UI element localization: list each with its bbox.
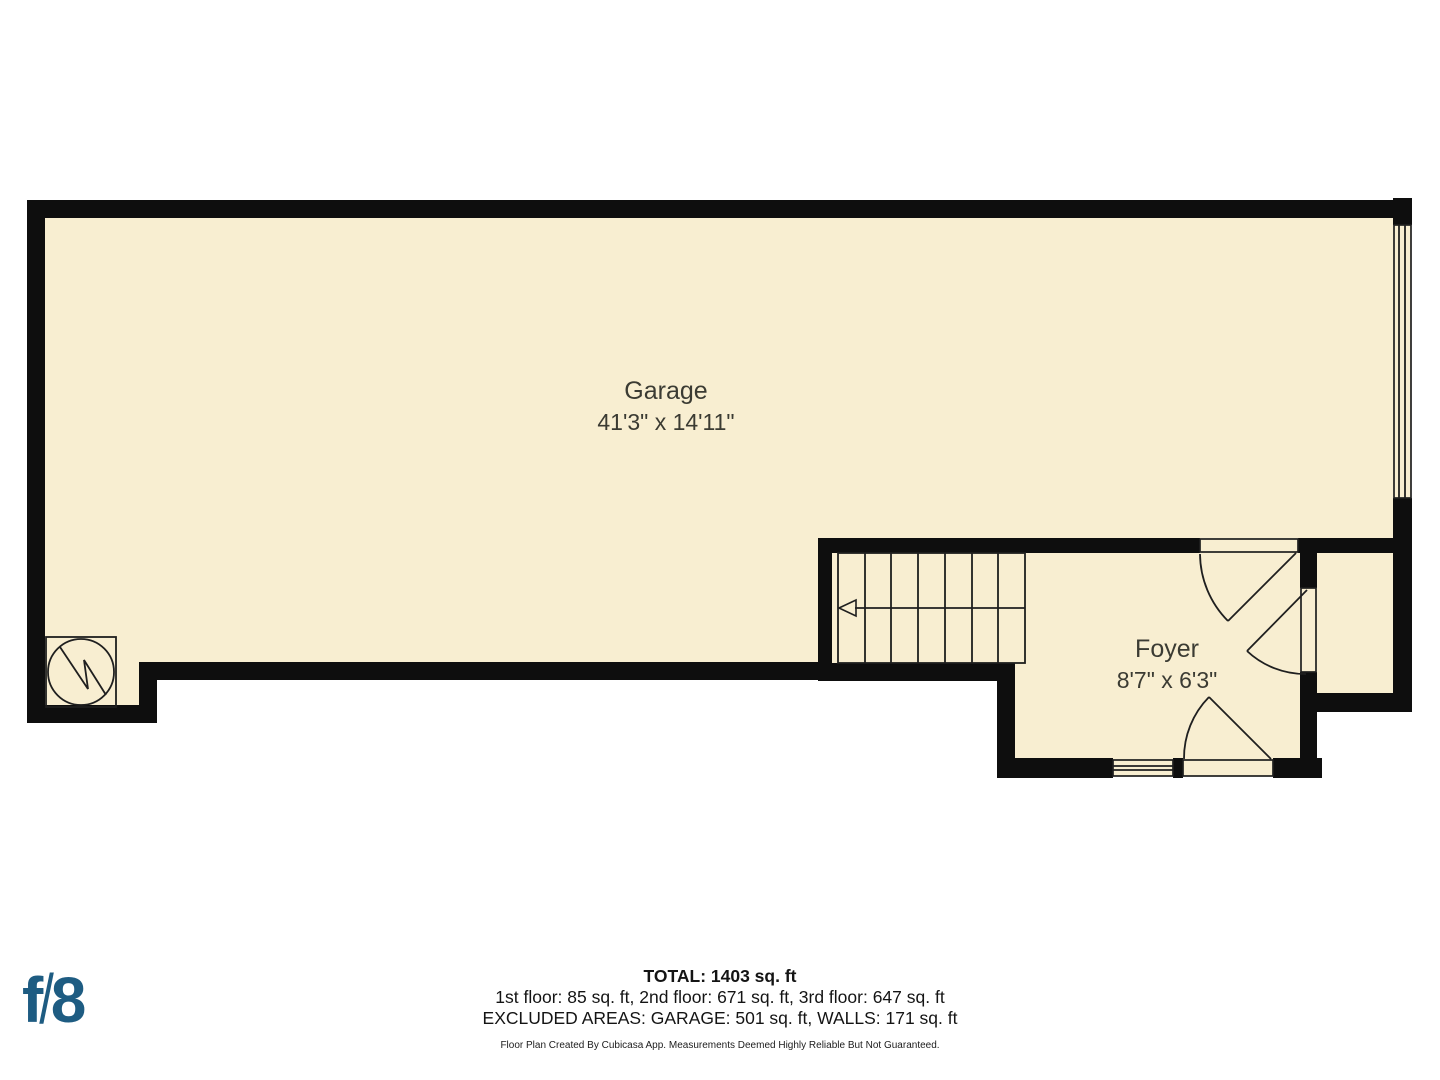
area-summary: TOTAL: 1403 sq. ft 1st floor: 85 sq. ft,…: [0, 966, 1440, 1051]
disclaimer-text: Floor Plan Created By Cubicasa App. Meas…: [0, 1040, 1440, 1051]
garage-door-icon: [1394, 225, 1411, 498]
foyer-name: Foyer: [1047, 634, 1287, 666]
foyer-room-label: Foyer 8'7" x 6'3": [1047, 634, 1287, 694]
wall-stairs-bottom: [818, 663, 1015, 681]
floor-plan-drawing: [0, 0, 1440, 1080]
wall-foyer-bottom-a: [997, 758, 1113, 778]
wall-left: [27, 200, 45, 723]
total-area-text: TOTAL: 1403 sq. ft: [0, 966, 1440, 987]
wall-top: [27, 200, 1412, 218]
logo-digit-8: 8: [51, 963, 86, 1037]
wall-garage-bottom-left: [139, 662, 832, 680]
wall-foyer-right-lower: [1300, 672, 1317, 778]
wall-right-upper: [1393, 198, 1412, 225]
wall-foyer-right-upper: [1300, 553, 1317, 588]
side-room-floor: [1310, 546, 1403, 700]
floor-areas-text: 1st floor: 85 sq. ft, 2nd floor: 671 sq.…: [0, 987, 1440, 1008]
window-icon: [1113, 760, 1173, 776]
foyer-dimensions: 8'7" x 6'3": [1047, 666, 1287, 695]
logo-slash: /: [40, 959, 54, 1039]
garage-room-label: Garage 41'3" x 14'11": [546, 376, 786, 436]
wall-foyer-bottom-b: [1173, 758, 1183, 778]
garage-name: Garage: [546, 376, 786, 408]
floor-plan-page: Garage 41'3" x 14'11" Foyer 8'7" x 6'3" …: [0, 0, 1440, 1080]
wall-garage-bottom-right-a: [818, 538, 1200, 553]
f8-logo: f / 8: [22, 963, 85, 1043]
wall-stairs-left: [818, 538, 832, 681]
wall-right-lower: [1393, 498, 1412, 712]
excluded-areas-text: EXCLUDED AREAS: GARAGE: 501 sq. ft, WALL…: [0, 1008, 1440, 1029]
garage-dimensions: 41'3" x 14'11": [546, 408, 786, 437]
